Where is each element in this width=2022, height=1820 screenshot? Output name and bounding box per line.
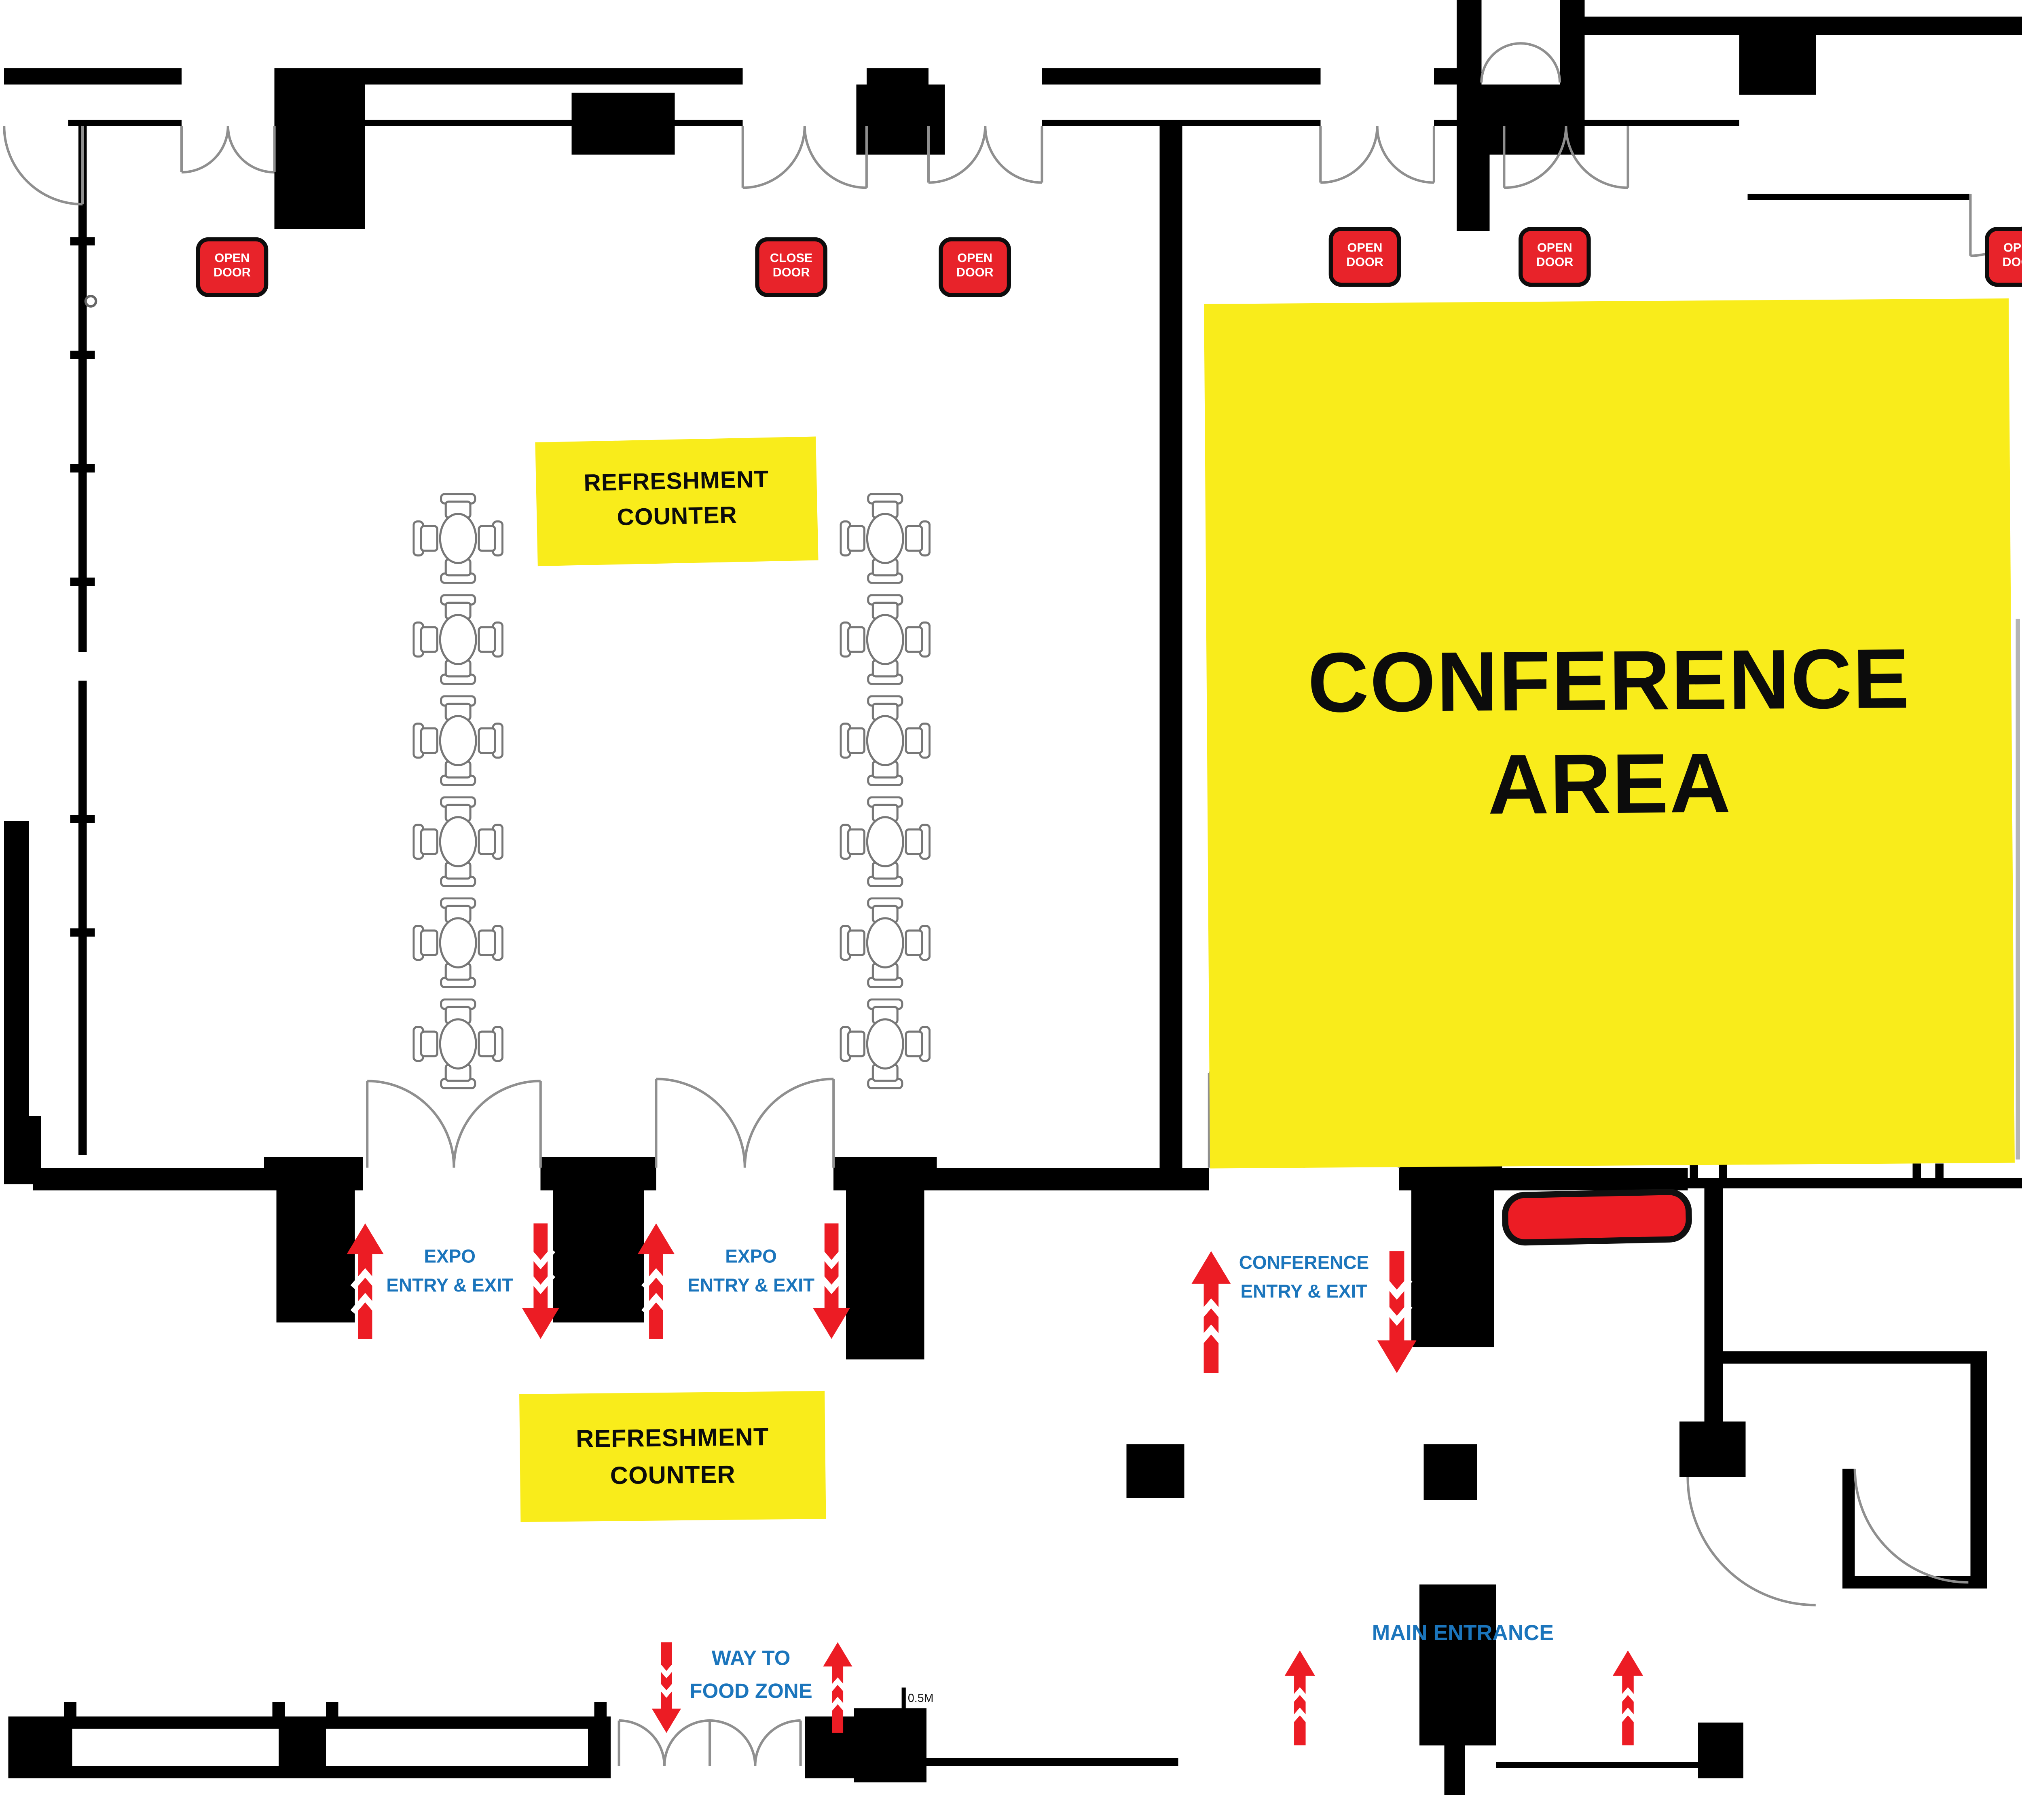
dimension-tick	[902, 1687, 905, 1716]
conference-area-label: CONFERENCE AREA	[1268, 630, 1950, 837]
exhibition-layout-poster: CONFERENCE AREA REFRESHMENT COUNTER REFR…	[0, 0, 2022, 1820]
dimension-note: 0.5M	[908, 1694, 933, 1706]
food-zone-label: WAY TOFOOD ZONE	[675, 1649, 827, 1704]
shadow-line	[2016, 619, 2020, 1160]
wall-openings	[72, 1729, 588, 1766]
door-sign: OPEN DOOR	[1519, 227, 1591, 287]
expo-entry-label-2: EXPOENTRY & EXIT	[658, 1246, 844, 1297]
conference-entry-label: CONFERENCEENTRY & EXIT	[1197, 1252, 1411, 1303]
refreshment-counter-label: REFRESHMENT COUNTER	[573, 463, 781, 539]
refreshment-counter-bottom: REFRESHMENT COUNTER	[519, 1391, 826, 1522]
door-sign: OPEN DOOR	[1985, 227, 2022, 287]
door-sign: CLOSE DOOR	[755, 237, 827, 297]
refreshment-counter-top: REFRESHMENT COUNTER	[535, 437, 818, 567]
door-sign: OPEN DOOR	[196, 237, 269, 297]
door-sign: OPEN DOOR	[939, 237, 1011, 297]
main-entrance-label: MAIN ENTRANCE	[1339, 1621, 1586, 1647]
stage-block	[1502, 1188, 1692, 1246]
dining-tables	[414, 494, 930, 1089]
door-sign: OPEN DOOR	[1329, 227, 1401, 287]
expo-entry-label-1: EXPOENTRY & EXIT	[357, 1246, 543, 1297]
refreshment-counter-label: REFRESHMENT COUNTER	[561, 1418, 785, 1494]
conference-area: CONFERENCE AREA	[1204, 298, 2015, 1169]
